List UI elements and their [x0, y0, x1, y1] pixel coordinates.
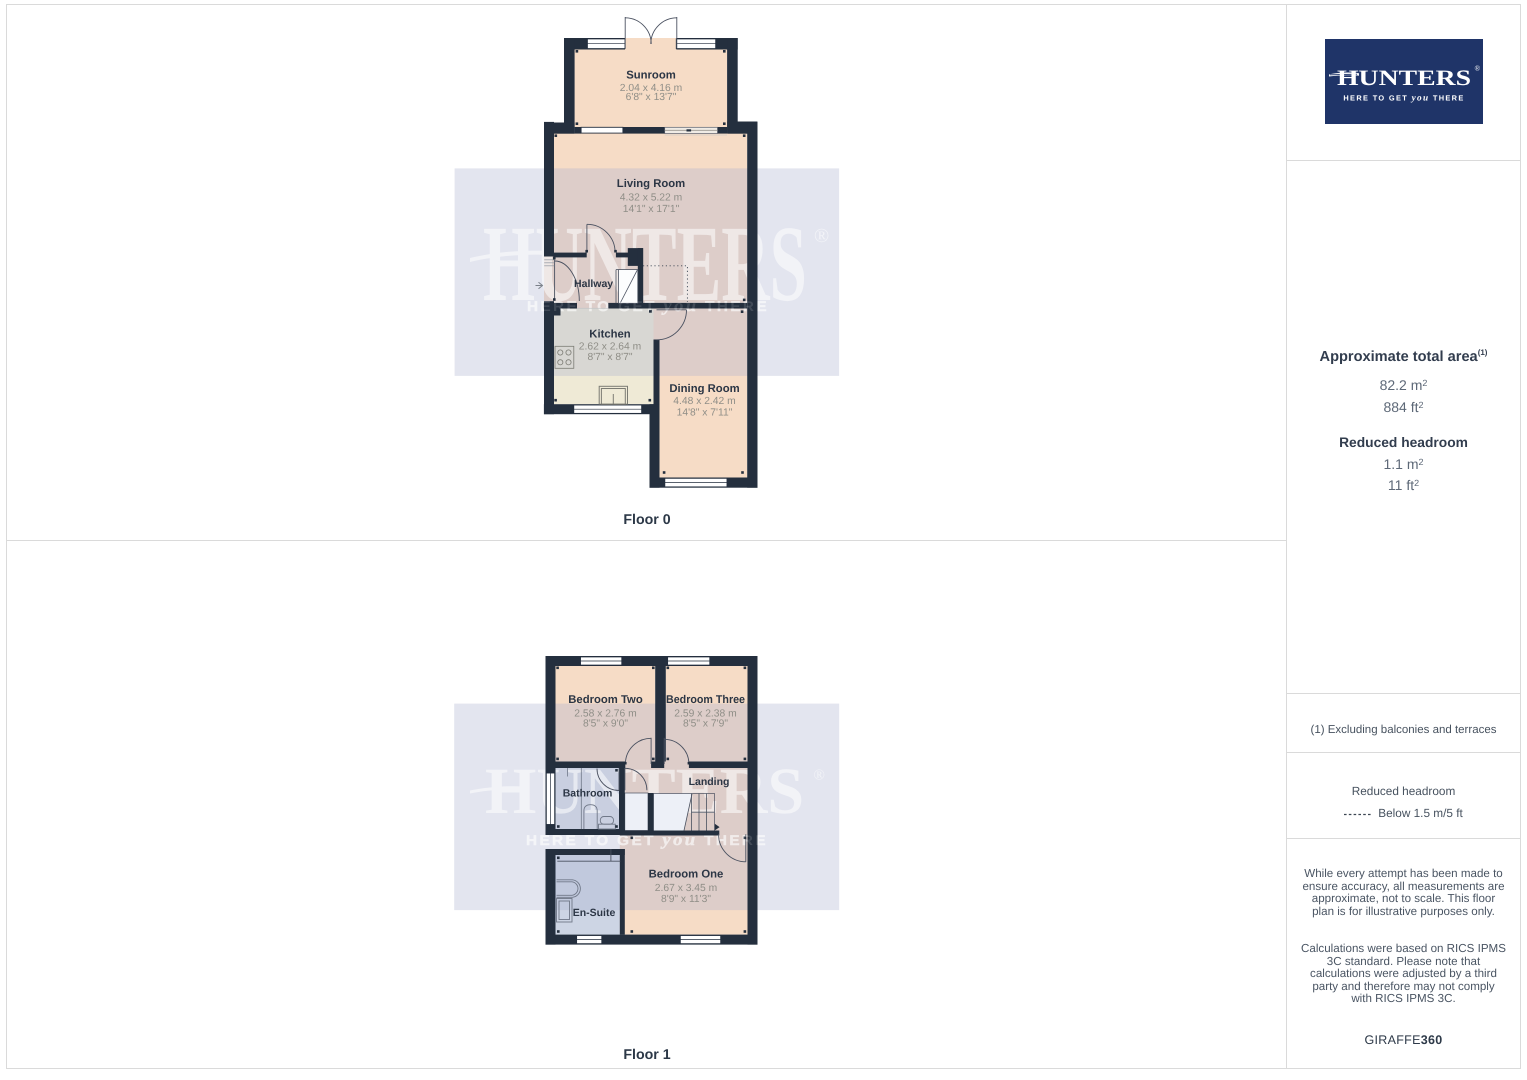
- svg-text:14'8" x 7'11": 14'8" x 7'11": [677, 408, 733, 419]
- svg-text:Bedroom One: Bedroom One: [649, 869, 724, 881]
- svg-text:2.67 x 3.45 m: 2.67 x 3.45 m: [655, 883, 717, 894]
- svg-text:Bathroom: Bathroom: [563, 788, 613, 800]
- svg-text:4.32 x 5.22 m: 4.32 x 5.22 m: [620, 193, 682, 204]
- svg-text:HERE TO GET you THERE: HERE TO GET you THERE: [527, 296, 769, 315]
- svg-text:®: ®: [814, 225, 829, 247]
- svg-text:Dining Room: Dining Room: [669, 383, 739, 395]
- svg-text:Sunroom: Sunroom: [626, 70, 676, 82]
- svg-text:Living Room: Living Room: [617, 178, 685, 190]
- svg-text:Kitchen: Kitchen: [589, 329, 631, 341]
- svg-text:8'9" x 11'3": 8'9" x 11'3": [661, 894, 711, 905]
- svg-text:8'5" x 7'9": 8'5" x 7'9": [683, 719, 728, 730]
- svg-text:®: ®: [814, 768, 825, 784]
- svg-text:Bedroom Three: Bedroom Three: [666, 694, 745, 706]
- svg-text:Hallway: Hallway: [574, 278, 613, 290]
- svg-text:14'1" x 17'1": 14'1" x 17'1": [623, 204, 680, 215]
- svg-text:4.48 x 2.42 m: 4.48 x 2.42 m: [673, 396, 735, 407]
- svg-text:2.62 x 2.64 m: 2.62 x 2.64 m: [579, 341, 641, 352]
- svg-text:8'5" x 9'0": 8'5" x 9'0": [583, 719, 628, 730]
- svg-text:HERE TO GET you THERE: HERE TO GET you THERE: [526, 830, 768, 849]
- svg-text:8'7" x 8'7": 8'7" x 8'7": [587, 352, 632, 363]
- svg-text:Landing: Landing: [689, 776, 730, 788]
- svg-text:Floor 1: Floor 1: [623, 1047, 670, 1063]
- svg-text:Floor 0: Floor 0: [623, 512, 670, 528]
- svg-text:En-Suite: En-Suite: [573, 907, 616, 919]
- svg-text:Bedroom Two: Bedroom Two: [568, 694, 643, 706]
- svg-text:6'8" x 13'7": 6'8" x 13'7": [626, 92, 677, 103]
